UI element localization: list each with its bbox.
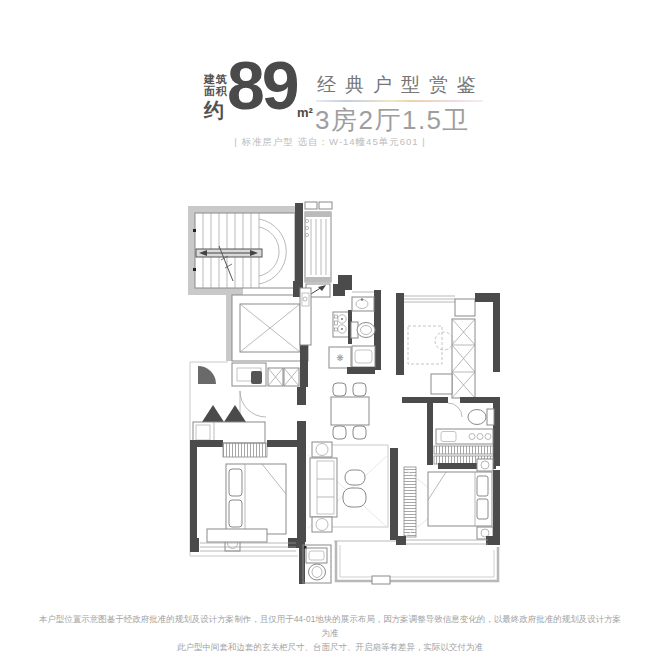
rug [330,445,388,527]
pouf [345,470,365,485]
elevator [226,293,308,361]
bedroom-1 [190,440,302,552]
drying-rack-icon [202,405,224,422]
floor-plan: ❋ [0,0,660,660]
toilet-icon [468,409,494,425]
laundry-sink [251,371,262,384]
staircase [188,206,298,295]
bed-icon [226,464,286,534]
toilet-icon [351,322,375,338]
wardrobe-icon [404,467,416,537]
meter-box [198,366,216,384]
svg-text:❋: ❋ [336,353,344,363]
lower-bathroom [299,542,331,584]
closet [223,443,267,457]
vanity-cabinet [352,346,375,367]
desk-icon [431,374,452,394]
door-swing [240,391,266,417]
disclaimer-line2: 此户型中间套和边套的玄关柜尺寸、台面尺寸、开启扇等有差异，实际以交付为准 [38,640,622,654]
disclaimer-line1: 本户型位置示意图基于经政府批准的规划及设计方案制作，且仅用于44-01地块的展示… [38,612,622,640]
bay-window [207,529,267,542]
sofa-icon [310,458,337,517]
nightstand-icon [477,459,493,471]
dining-chair [353,426,366,439]
dining-chair [333,426,346,439]
side-table [312,442,332,457]
bed-icon [428,472,492,526]
side-table [312,517,332,532]
disclaimer: 本户型位置示意图基于经政府批准的规划及设计方案制作，且仅用于44-01地块的展示… [38,612,622,654]
bathroom [427,398,500,469]
kitchen: ❋ [300,288,351,387]
dining-table [331,397,369,425]
sink-icon [352,297,374,311]
counter [193,422,265,443]
dining-chair [333,383,346,396]
fridge-icon: ❋ [329,347,351,368]
dining-area [331,383,369,439]
powder-room [347,290,381,374]
master-balcony [334,541,498,584]
dining-chair [353,383,366,396]
double-sink-icon [436,429,493,444]
bedroom-2 [396,293,500,417]
wardrobe-icon [452,319,475,398]
floorplan-poster: 建筑 面积 约 89 m² 经典户型赏鉴 3房2厅1.5卫 | 标准层户型 选自… [0,0,660,660]
shower-area [434,446,493,454]
stove-icon [333,312,349,337]
pouf [343,488,366,507]
window-box [455,299,475,316]
